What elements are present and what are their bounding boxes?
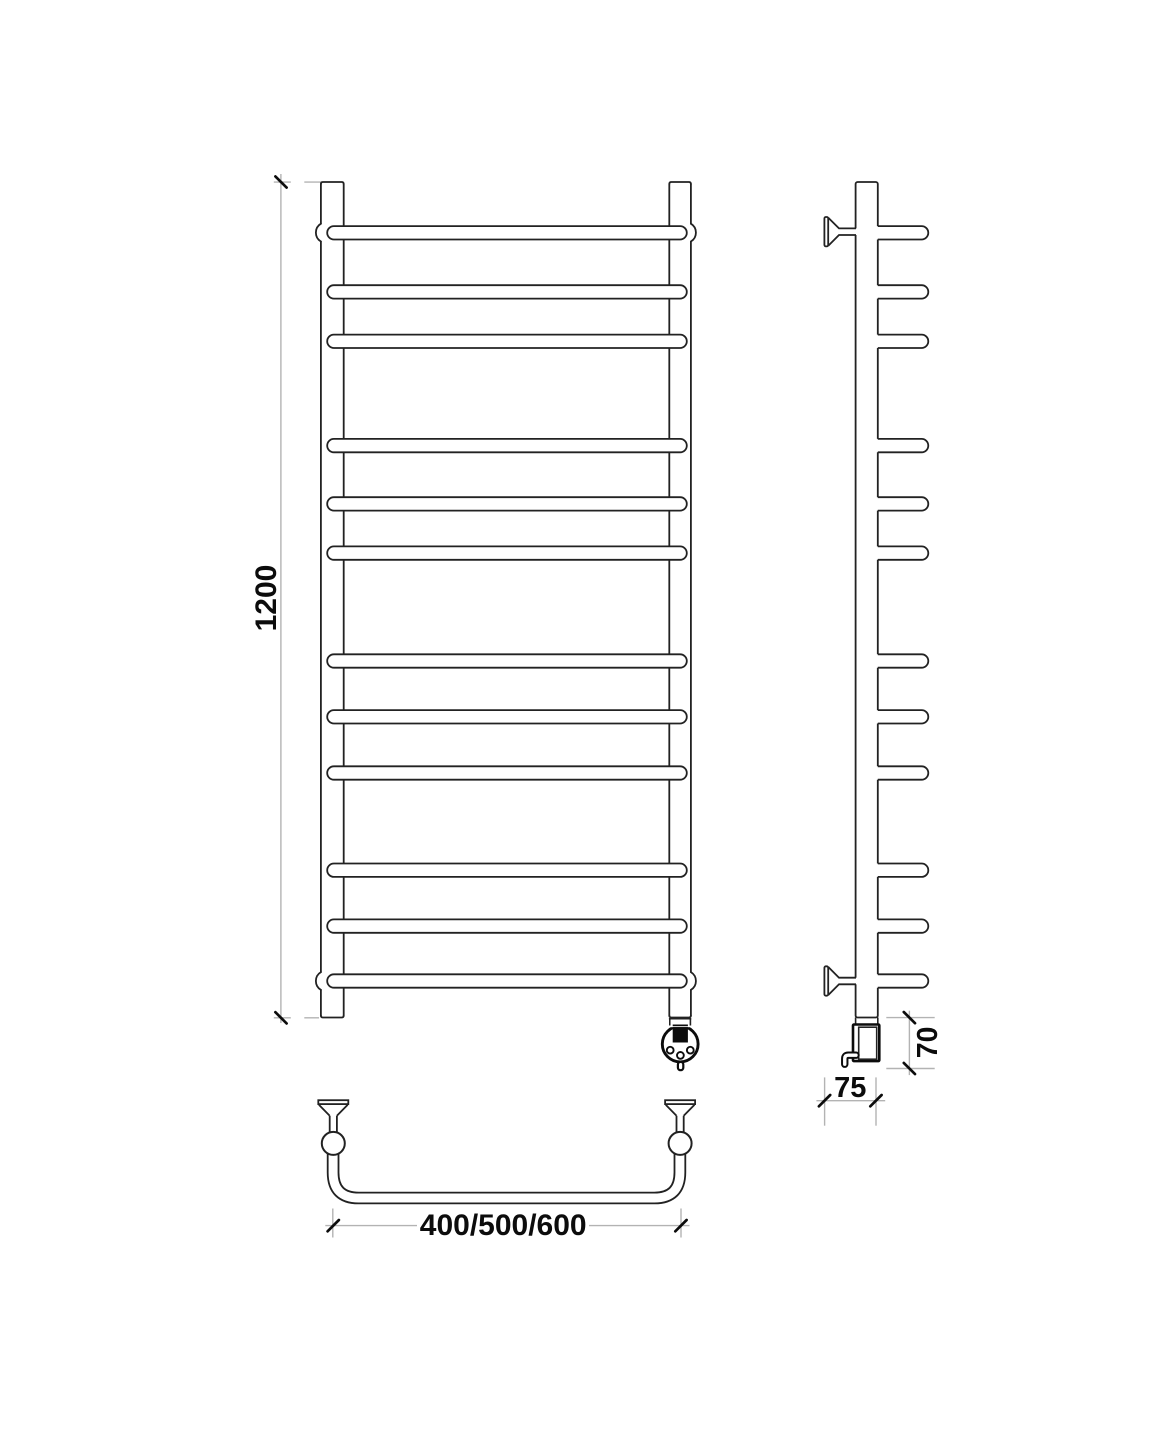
svg-text:400/500/600: 400/500/600 bbox=[420, 1209, 587, 1242]
svg-text:70: 70 bbox=[912, 1027, 944, 1059]
svg-text:1200: 1200 bbox=[250, 565, 283, 632]
svg-text:75: 75 bbox=[834, 1072, 866, 1104]
